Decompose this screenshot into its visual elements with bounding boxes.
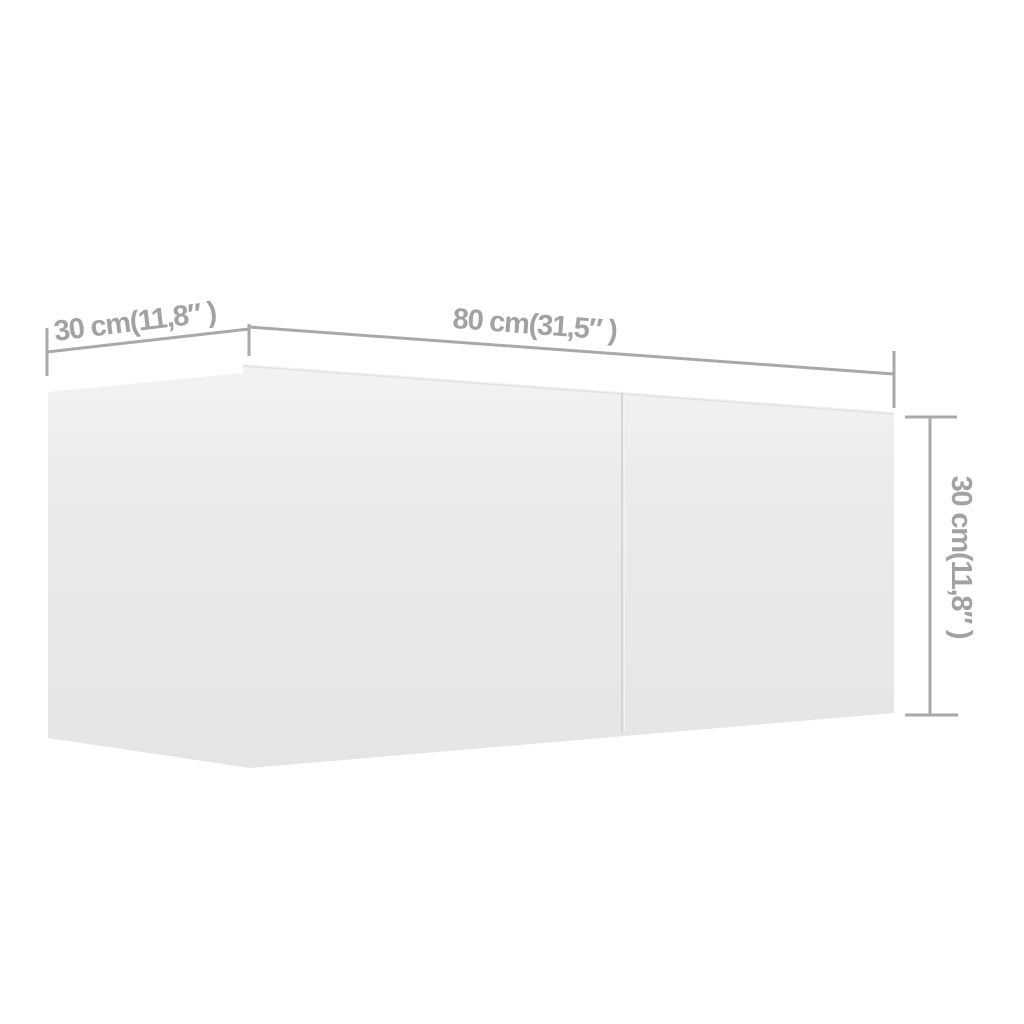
height-label: 30 cm(11,8″ ) [945, 476, 977, 639]
dimension-diagram: 30 cm(11,8″ ) 80 cm(31,5″ ) 30 cm(11,8″ … [0, 0, 1024, 1024]
width-label: 80 cm(31,5″ ) [452, 303, 619, 347]
depth-label: 30 cm(11,8″ ) [52, 296, 218, 348]
cabinet-body [48, 364, 894, 768]
product-image-canvas: 30 cm(11,8″ ) 80 cm(31,5″ ) 30 cm(11,8″ … [0, 0, 1024, 1024]
